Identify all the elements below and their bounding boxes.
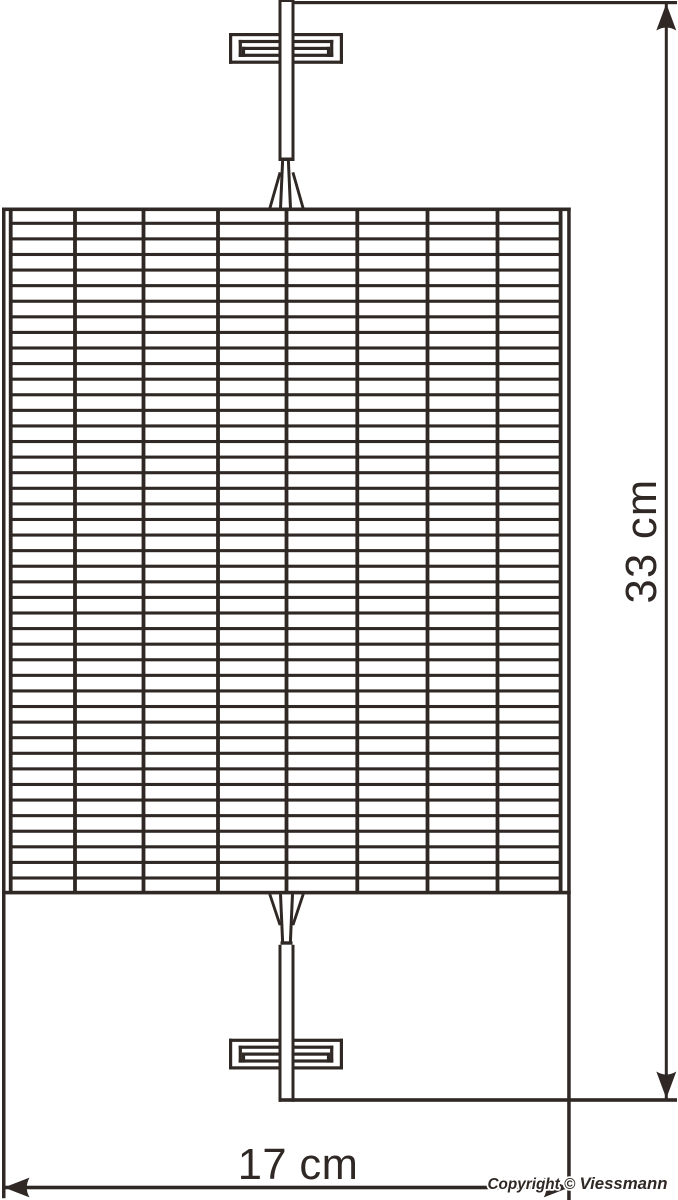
- svg-text:17 cm: 17 cm: [238, 1141, 358, 1189]
- svg-text:Copyright © Viessmann: Copyright © Viessmann: [488, 1174, 668, 1193]
- svg-text:33 cm: 33 cm: [618, 479, 666, 604]
